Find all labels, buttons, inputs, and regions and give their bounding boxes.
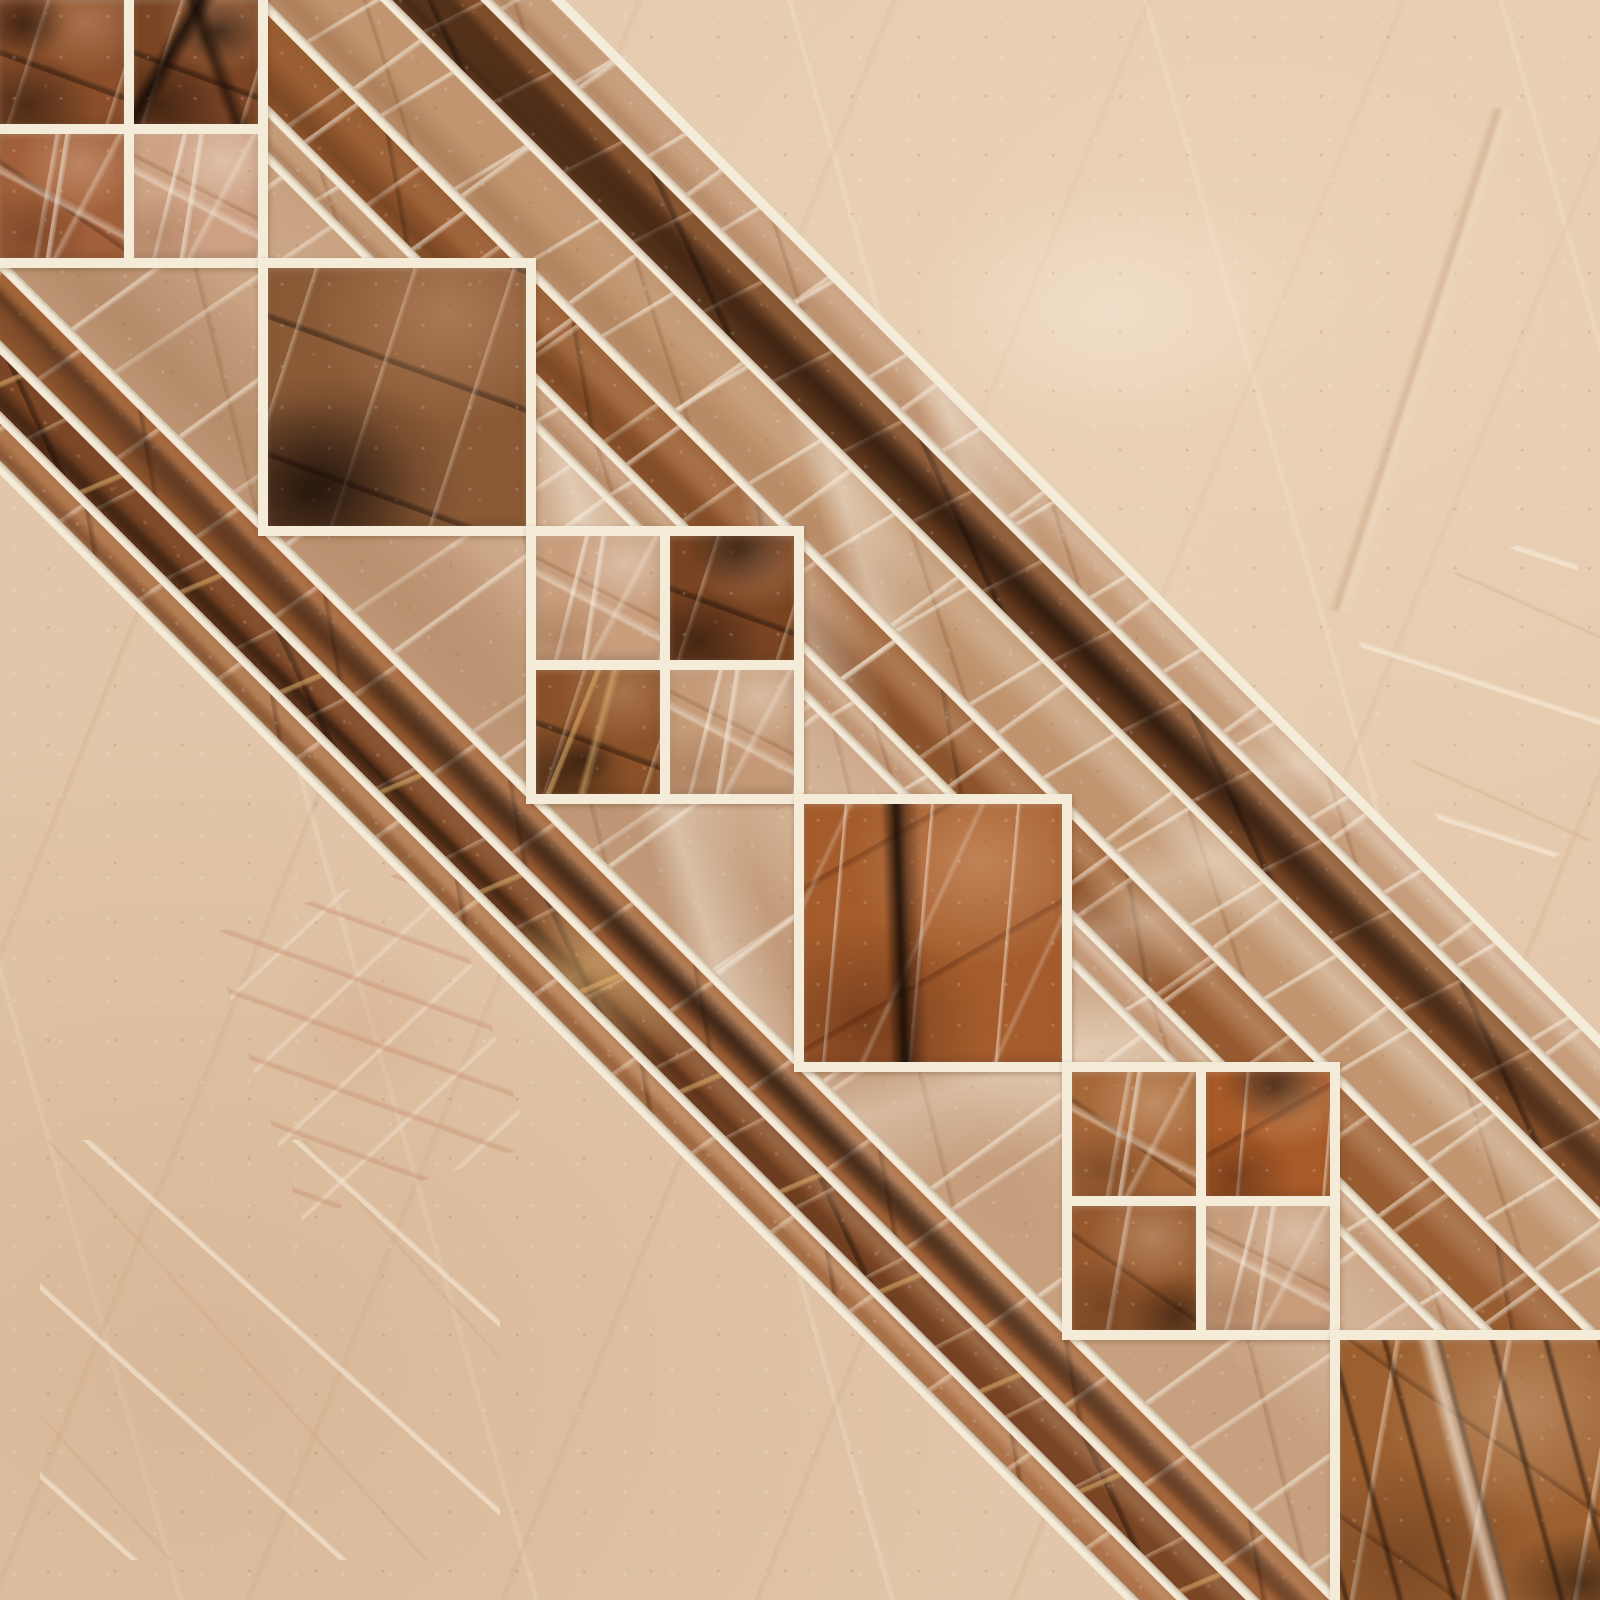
marble-vein-faint-vein [1295, 90, 1546, 630]
marble-tile-cell-big [1340, 1340, 1600, 1600]
tile-artwork [0, 0, 1600, 1600]
marble-vein-cream-streaks [40, 1140, 500, 1560]
marble-tile-cell [670, 536, 794, 660]
mosaic-unit-big [258, 258, 536, 536]
marble-tile-cell-big [804, 804, 1062, 1062]
marble-tile-cell [0, 0, 124, 124]
marble-tile-cell [536, 536, 660, 660]
mosaic-unit-quad [526, 526, 804, 804]
marble-tile-cell [134, 134, 258, 258]
mosaic-unit-quad [1062, 1062, 1340, 1340]
marble-tile-cell-big [268, 268, 526, 526]
marble-tile-cell [1206, 1206, 1330, 1330]
marble-tile-cell [0, 134, 124, 258]
mosaic-unit-big [794, 794, 1072, 1072]
marble-tile-cell [670, 670, 794, 794]
marble-tile-cell [1206, 1072, 1330, 1196]
marble-tile-cell [134, 0, 258, 124]
mosaic-unit-quad [0, 0, 268, 268]
marble-tile-cell [1072, 1072, 1196, 1196]
marble-tile-cell [1072, 1206, 1196, 1330]
mosaic-unit-big [1330, 1330, 1600, 1600]
marble-tile-cell [536, 670, 660, 794]
